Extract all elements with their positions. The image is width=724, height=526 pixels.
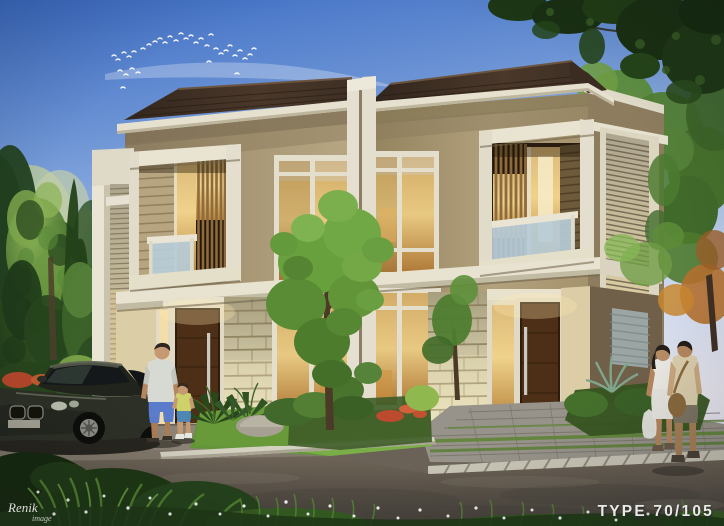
svg-text:image: image: [32, 514, 52, 523]
svg-text:Renik: Renik: [7, 500, 38, 515]
svg-text:TYPE 70/105: TYPE 70/105: [598, 503, 714, 520]
